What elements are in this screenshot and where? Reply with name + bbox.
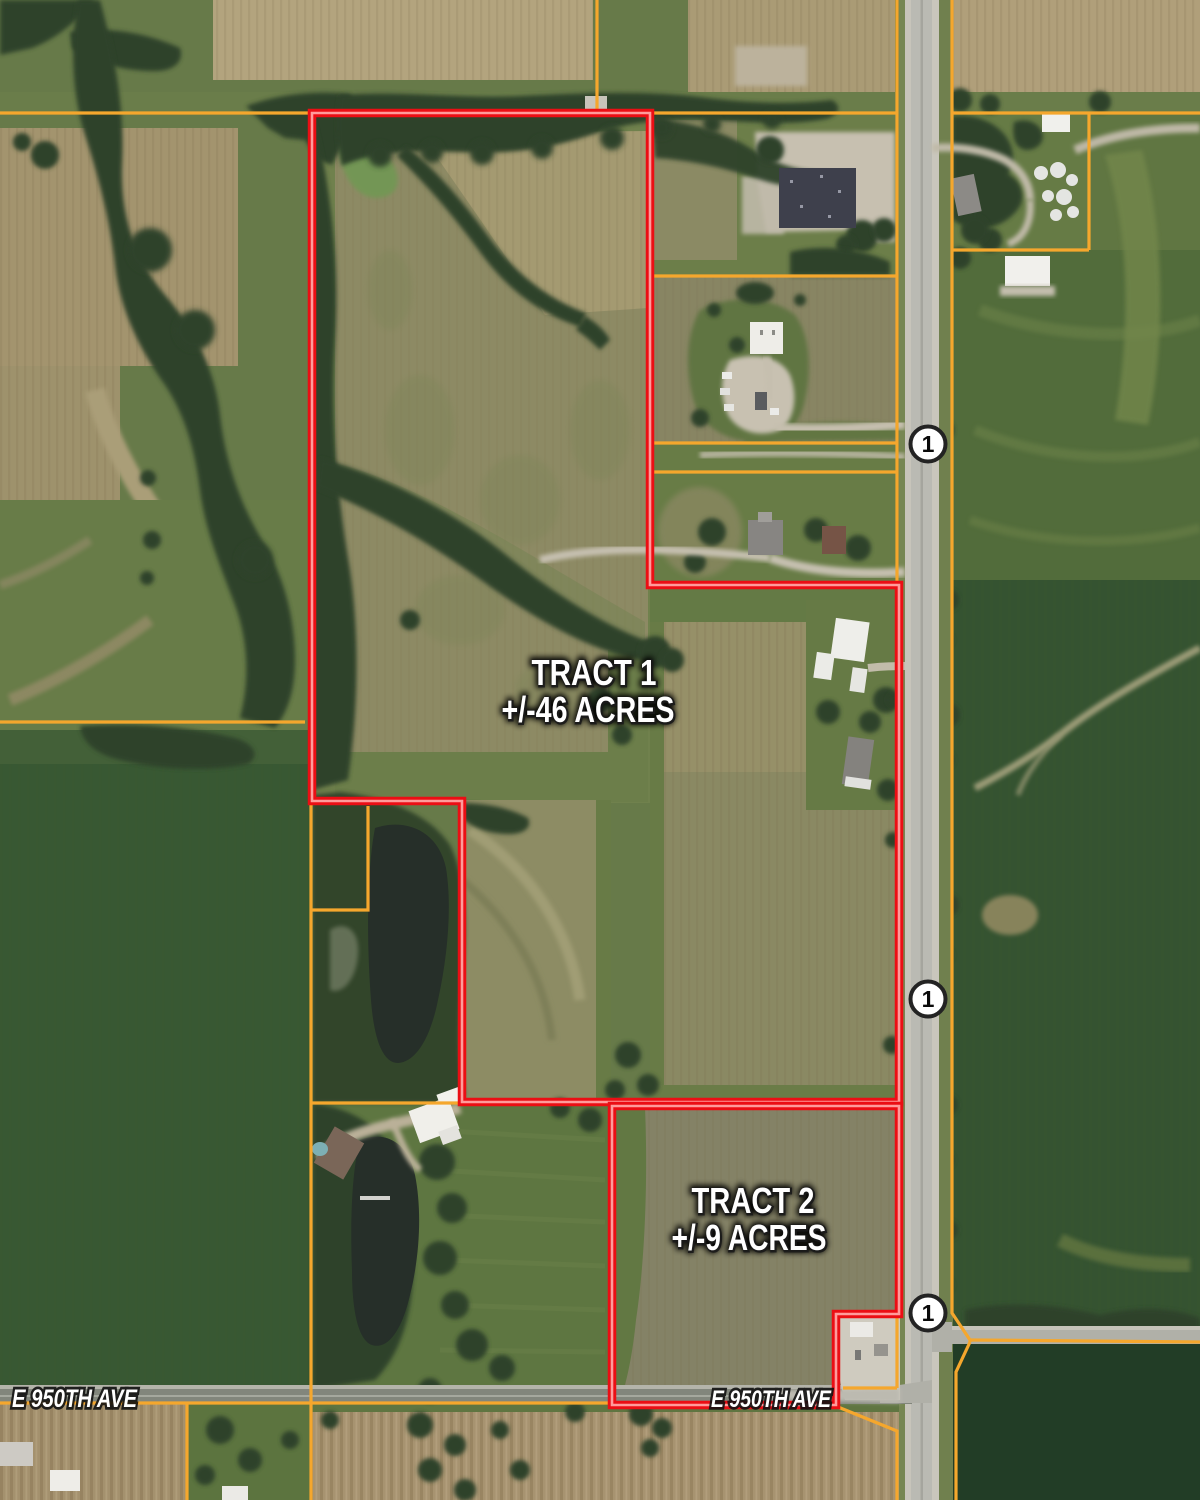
svg-text:TRACT 1: TRACT 1 [532,652,657,693]
svg-text:E 950TH AVE: E 950TH AVE [711,1386,832,1413]
svg-text:1: 1 [922,986,935,1012]
svg-text:+/-9 ACRES: +/-9 ACRES [672,1217,827,1258]
svg-text:1: 1 [922,1300,935,1326]
svg-text:+/-46 ACRES: +/-46 ACRES [502,689,675,730]
svg-text:TRACT 2: TRACT 2 [692,1180,815,1221]
svg-text:E 950TH AVE: E 950TH AVE [12,1385,138,1413]
svg-text:1: 1 [922,431,935,457]
